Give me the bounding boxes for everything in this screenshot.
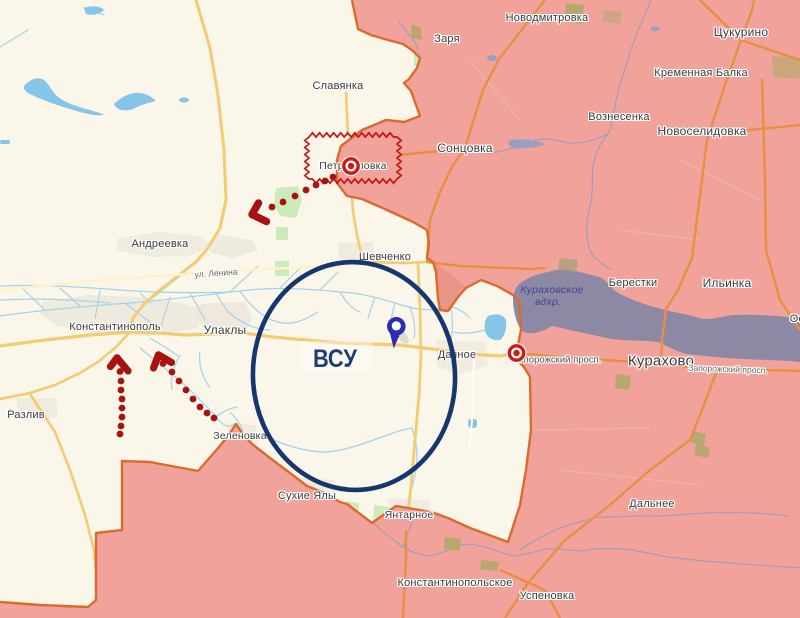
svg-text:ВСУ: ВСУ bbox=[313, 345, 357, 373]
